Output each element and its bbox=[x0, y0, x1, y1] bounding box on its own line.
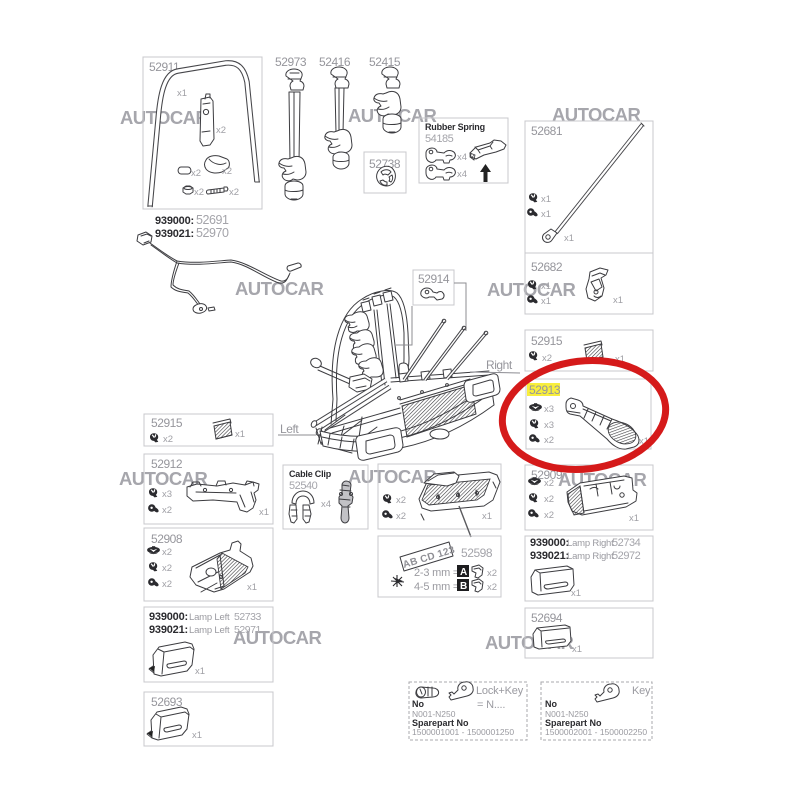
svg-text:x2: x2 bbox=[229, 187, 239, 198]
svg-text:x2: x2 bbox=[542, 353, 552, 364]
svg-text:52682: 52682 bbox=[531, 260, 563, 274]
svg-text:x2: x2 bbox=[162, 547, 172, 558]
svg-text:x1: x1 bbox=[613, 295, 623, 306]
svg-text:x3: x3 bbox=[544, 404, 554, 415]
svg-text:x1: x1 bbox=[177, 88, 187, 99]
svg-text:52908: 52908 bbox=[151, 532, 183, 546]
svg-text:No: No bbox=[545, 699, 557, 709]
svg-text:52694: 52694 bbox=[531, 611, 563, 625]
svg-text:939000:: 939000: bbox=[530, 537, 569, 549]
svg-text:x1: x1 bbox=[259, 507, 269, 518]
svg-text:x1: x1 bbox=[247, 582, 257, 593]
svg-text:Right: Right bbox=[486, 358, 513, 372]
svg-text:x1: x1 bbox=[192, 730, 202, 741]
svg-text:x3: x3 bbox=[162, 489, 172, 500]
svg-text:x1: x1 bbox=[235, 429, 245, 440]
svg-text:939021:: 939021: bbox=[530, 550, 569, 562]
svg-text:Lock+Key: Lock+Key bbox=[476, 685, 524, 697]
svg-text:Lamp Right: Lamp Right bbox=[567, 551, 614, 562]
svg-text:52970: 52970 bbox=[196, 226, 229, 240]
svg-text:x2: x2 bbox=[544, 478, 554, 489]
svg-text:A: A bbox=[460, 567, 467, 578]
svg-text:Lamp Left: Lamp Left bbox=[189, 625, 230, 636]
svg-text:52915: 52915 bbox=[531, 334, 563, 348]
svg-text:Rubber Spring: Rubber Spring bbox=[425, 122, 485, 132]
svg-text:52693: 52693 bbox=[151, 695, 183, 709]
svg-text:x1: x1 bbox=[195, 666, 205, 677]
svg-text:x1: x1 bbox=[629, 513, 639, 524]
svg-text:52416: 52416 bbox=[319, 55, 351, 69]
svg-text:52598: 52598 bbox=[461, 546, 493, 560]
svg-text:x2: x2 bbox=[162, 579, 172, 590]
svg-text:939000:: 939000: bbox=[155, 215, 194, 227]
svg-text:x1: x1 bbox=[571, 588, 581, 599]
svg-text:x1: x1 bbox=[541, 296, 551, 307]
svg-text:= N....: = N.... bbox=[477, 699, 505, 711]
svg-text:52912: 52912 bbox=[151, 457, 183, 471]
svg-text:x2: x2 bbox=[163, 434, 173, 445]
svg-text:x1: x1 bbox=[564, 233, 574, 244]
svg-text:x2: x2 bbox=[194, 187, 204, 198]
svg-text:AUTOCAR: AUTOCAR bbox=[120, 107, 208, 128]
svg-text:939021:: 939021: bbox=[155, 228, 194, 240]
svg-text:x2: x2 bbox=[544, 510, 554, 521]
svg-text:x2: x2 bbox=[544, 494, 554, 505]
svg-text:52971: 52971 bbox=[234, 624, 262, 636]
svg-text:52681: 52681 bbox=[531, 124, 563, 138]
svg-text:x1: x1 bbox=[541, 281, 551, 292]
svg-text:54185: 54185 bbox=[425, 133, 454, 145]
svg-text:2-3 mm =: 2-3 mm = bbox=[414, 567, 459, 579]
svg-text:1500002001 - 1500002250: 1500002001 - 1500002250 bbox=[545, 727, 647, 737]
svg-text:x4: x4 bbox=[321, 499, 331, 510]
svg-text:x2: x2 bbox=[216, 125, 226, 136]
svg-text:Lamp Left: Lamp Left bbox=[189, 612, 230, 623]
svg-text:Cable Clip: Cable Clip bbox=[289, 469, 332, 479]
svg-text:x1: x1 bbox=[482, 511, 492, 522]
svg-text:52540: 52540 bbox=[289, 480, 318, 492]
svg-text:x2: x2 bbox=[487, 582, 497, 593]
svg-text:4-5 mm =: 4-5 mm = bbox=[414, 581, 459, 593]
svg-text:52915: 52915 bbox=[151, 416, 183, 430]
svg-text:939021:: 939021: bbox=[149, 624, 188, 636]
svg-text:x2: x2 bbox=[222, 166, 232, 177]
svg-text:1500001001 - 1500001250: 1500001001 - 1500001250 bbox=[412, 727, 514, 737]
svg-text:x3: x3 bbox=[544, 420, 554, 431]
svg-text:52733: 52733 bbox=[234, 611, 262, 623]
svg-text:x4: x4 bbox=[457, 152, 467, 163]
svg-text:AUTOCAR: AUTOCAR bbox=[552, 104, 640, 125]
svg-text:52913: 52913 bbox=[529, 383, 561, 397]
svg-text:Key: Key bbox=[632, 685, 651, 697]
svg-text:Lamp Right: Lamp Right bbox=[567, 538, 614, 549]
svg-text:x4: x4 bbox=[457, 169, 467, 180]
svg-text:939000:: 939000: bbox=[149, 611, 188, 623]
svg-text:No: No bbox=[412, 699, 424, 709]
svg-text:AUTOCAR: AUTOCAR bbox=[235, 278, 323, 299]
svg-text:AUTOCAR: AUTOCAR bbox=[348, 466, 436, 487]
svg-text:52691: 52691 bbox=[196, 213, 229, 227]
svg-text:x2: x2 bbox=[162, 505, 172, 516]
svg-text:x1: x1 bbox=[572, 644, 582, 655]
svg-text:x2: x2 bbox=[191, 168, 201, 179]
svg-text:x1: x1 bbox=[541, 194, 551, 205]
svg-text:Left: Left bbox=[280, 422, 299, 436]
svg-text:x2: x2 bbox=[396, 495, 406, 506]
svg-text:x2: x2 bbox=[544, 435, 554, 446]
svg-text:52914: 52914 bbox=[418, 272, 450, 286]
svg-text:52973: 52973 bbox=[275, 55, 307, 69]
svg-text:x1: x1 bbox=[541, 209, 551, 220]
svg-text:52972: 52972 bbox=[612, 550, 641, 562]
svg-text:x2: x2 bbox=[162, 563, 172, 574]
svg-text:52415: 52415 bbox=[369, 55, 401, 69]
svg-text:x2: x2 bbox=[396, 511, 406, 522]
svg-text:52734: 52734 bbox=[612, 537, 641, 549]
svg-text:B: B bbox=[460, 581, 467, 592]
svg-text:x2: x2 bbox=[487, 568, 497, 579]
